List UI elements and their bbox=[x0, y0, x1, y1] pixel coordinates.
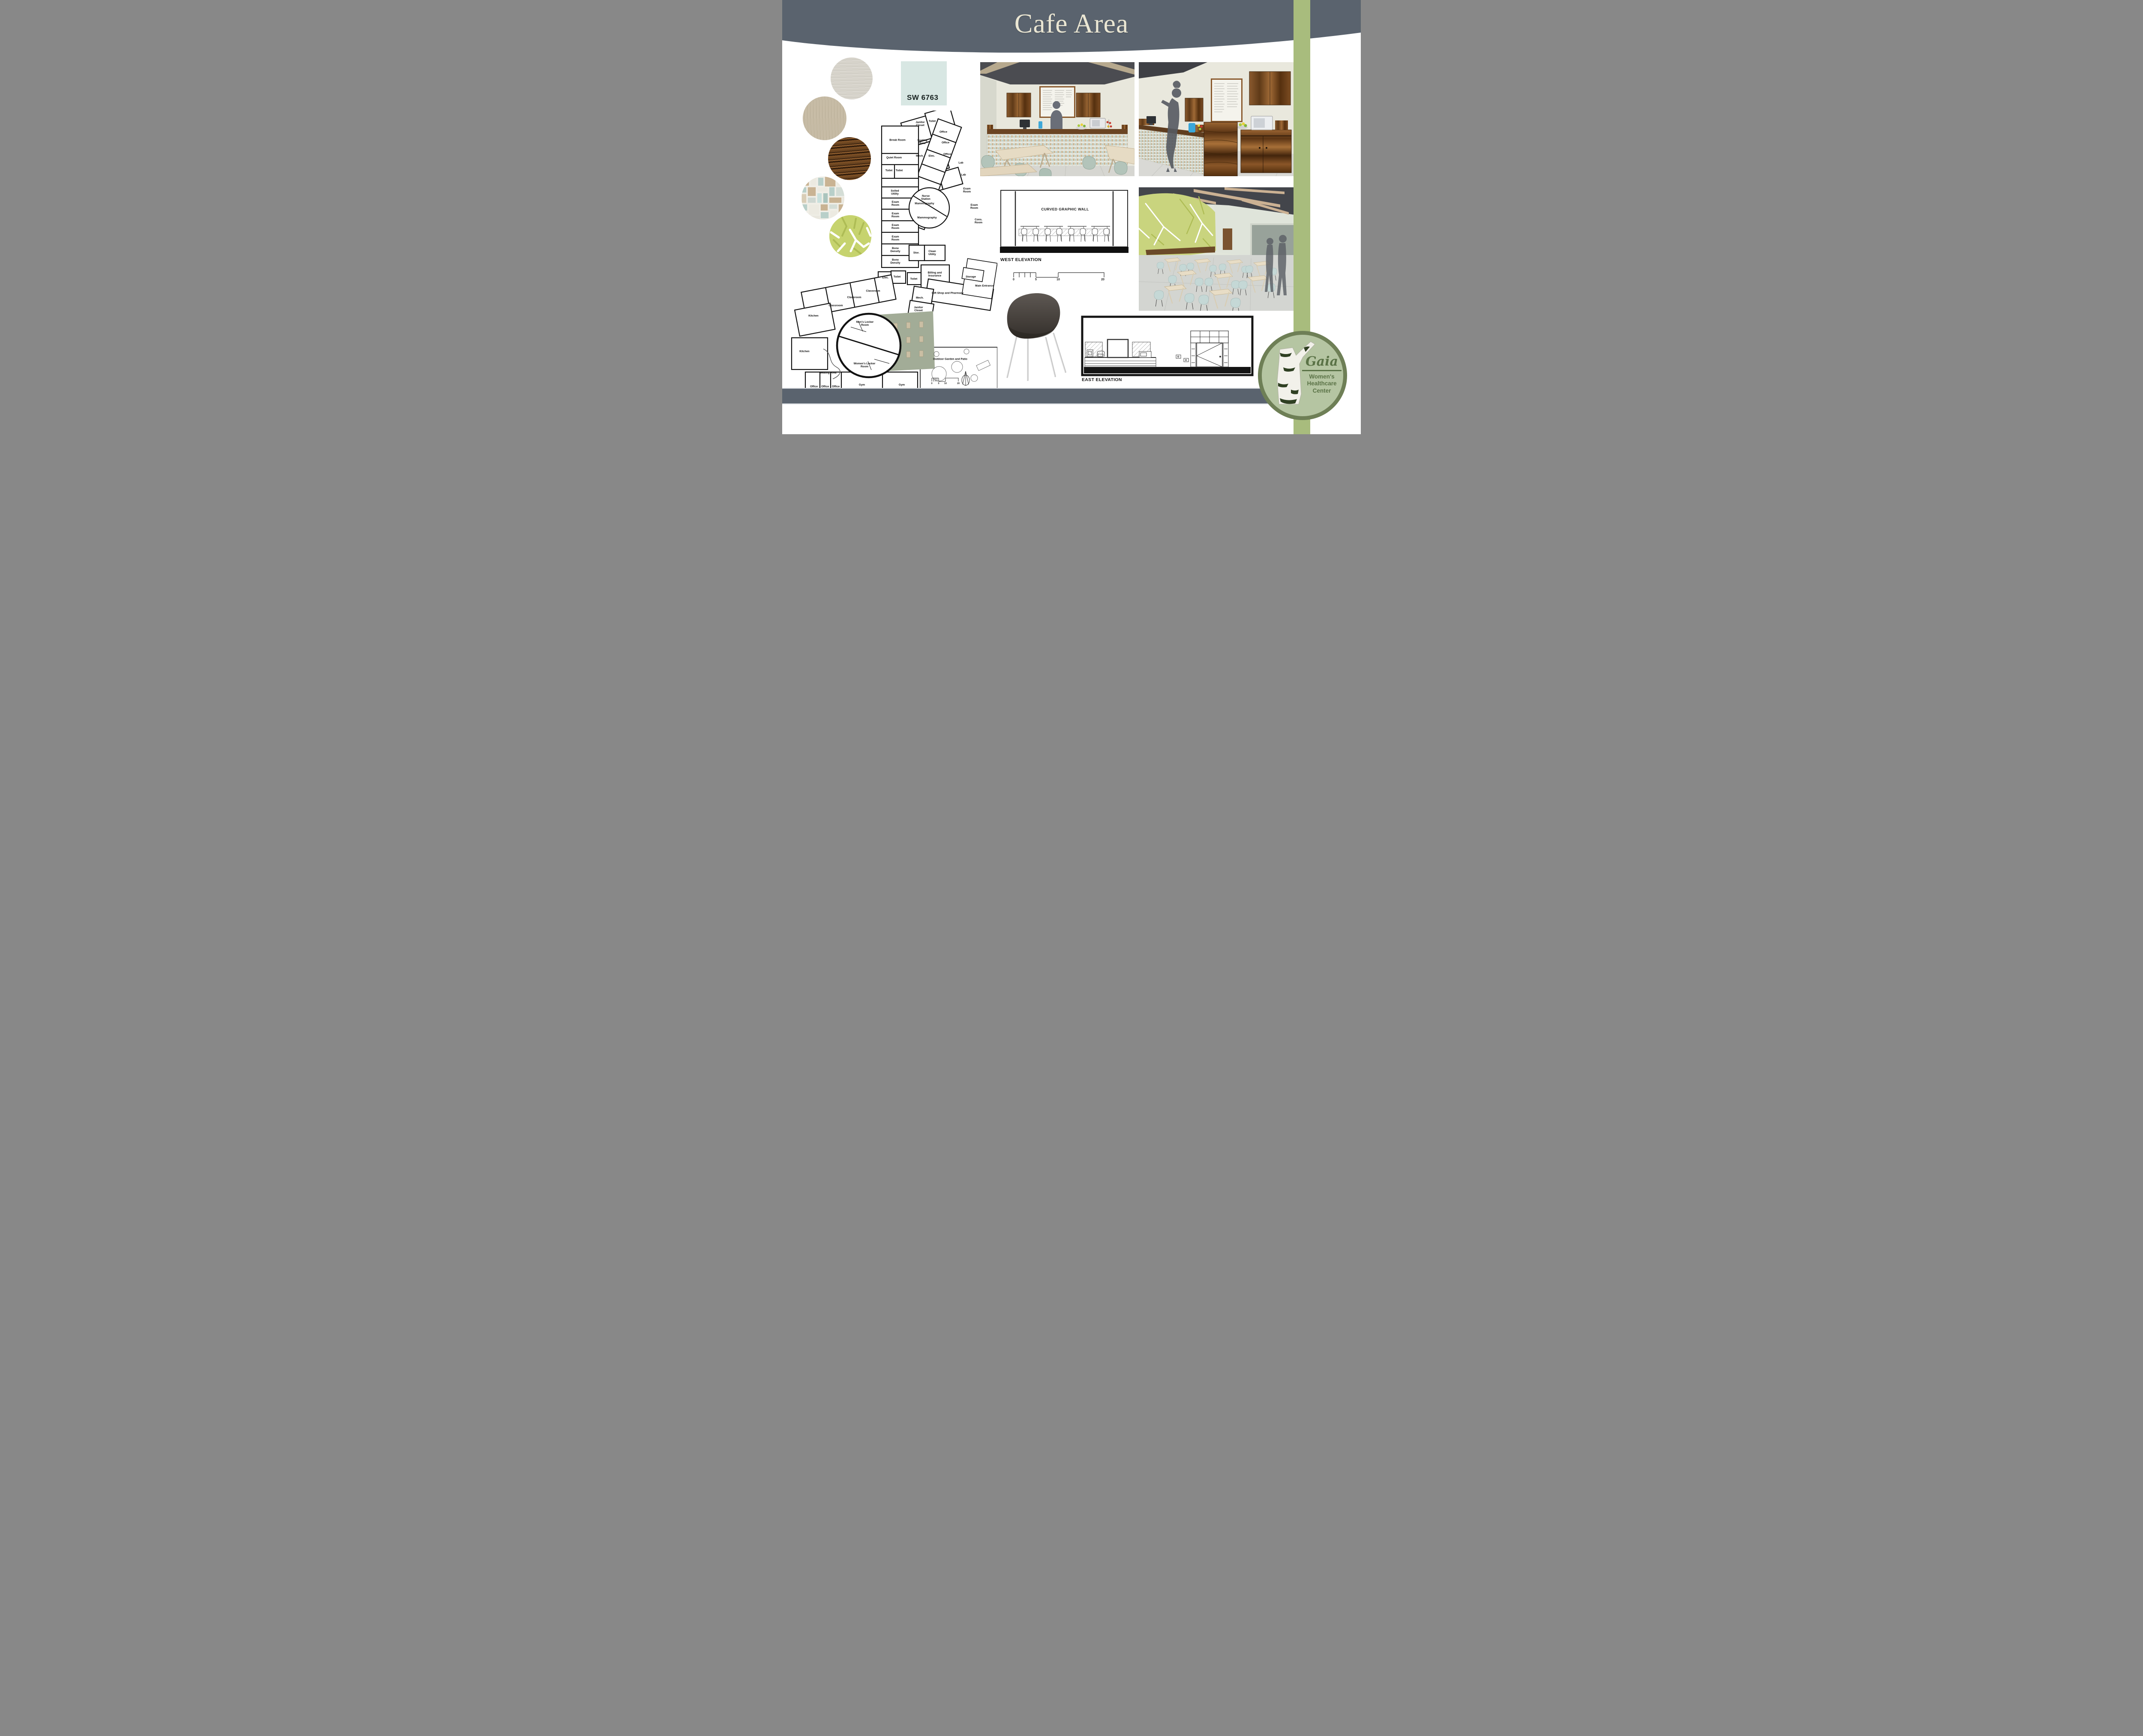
paint-code-label: SW 6763 bbox=[907, 93, 938, 102]
floor-plan: Janitor ClosetToiletOfficeBreak RoomSeat… bbox=[786, 111, 997, 391]
floor-plan-drawing bbox=[786, 111, 997, 391]
chair-product-image bbox=[991, 288, 1078, 387]
plan-scale-tick: 10 bbox=[944, 382, 947, 385]
logo-line: Women's bbox=[1300, 373, 1344, 380]
plan-scale-tick: 0 bbox=[931, 382, 932, 385]
render-cafe-counter-view bbox=[980, 62, 1135, 176]
logo-line: Healthcare bbox=[1300, 380, 1344, 387]
render-green-wall-seating bbox=[1139, 187, 1294, 311]
presentation-board: Cafe Area bbox=[782, 0, 1361, 434]
west-elevation-drawing bbox=[1000, 189, 1129, 257]
footer-band bbox=[782, 388, 1276, 404]
logo-brand: Gaia bbox=[1300, 355, 1344, 368]
logo-text: Gaia Women's Healthcare Center bbox=[1300, 355, 1344, 394]
west-annotation: CURVED GRAPHIC WALL bbox=[1026, 207, 1104, 211]
r2-cabinet-small bbox=[1185, 98, 1203, 121]
branch-pattern bbox=[829, 215, 871, 257]
east-elevation-drawing bbox=[1081, 315, 1254, 376]
east-microwave bbox=[1139, 351, 1151, 357]
plan-scale-tick: 20 bbox=[957, 382, 960, 385]
plan-locker-circle bbox=[837, 314, 900, 377]
east-floor-bar bbox=[1084, 367, 1251, 373]
paint-swatch: SW 6763 bbox=[901, 61, 947, 105]
r3-door bbox=[1223, 228, 1232, 250]
east-elevation-title: EAST ELEVATION bbox=[1082, 377, 1122, 382]
west-scale-tick: 10 bbox=[1056, 278, 1060, 281]
material-swatch-beige-woodgrain bbox=[803, 96, 846, 140]
page-title: Cafe Area bbox=[782, 8, 1361, 39]
west-scale-bar: 0 5 10 20 bbox=[1013, 272, 1105, 284]
west-elevation-title: WEST ELEVATION bbox=[1000, 257, 1041, 262]
gaia-logo: Gaia Women's Healthcare Center bbox=[1258, 330, 1348, 420]
material-swatch-mosaic-tile bbox=[801, 177, 844, 219]
west-scale-tick: 20 bbox=[1101, 278, 1105, 281]
plan-entrance-lobby bbox=[960, 258, 997, 299]
plan-mammography-circle bbox=[909, 188, 949, 228]
r2-wood-post bbox=[1275, 120, 1288, 130]
mosaic-tile-pattern bbox=[801, 177, 844, 219]
logo-divider bbox=[1302, 370, 1342, 371]
r2-lower-cabinet bbox=[1241, 130, 1291, 173]
material-swatch-burnt-wood bbox=[828, 137, 871, 180]
plan-scale-tick: 5 bbox=[938, 382, 939, 385]
logo-line: Center bbox=[1300, 387, 1344, 394]
west-scale-tick: 0 bbox=[1013, 278, 1014, 281]
material-swatch-green-branch bbox=[829, 215, 871, 257]
render-counter-closeup bbox=[1139, 62, 1294, 176]
material-swatch-light-woodgrain bbox=[831, 57, 873, 99]
r2-menu-board bbox=[1211, 78, 1243, 122]
r2-wood-end-panel bbox=[1204, 122, 1237, 176]
west-scale-tick: 5 bbox=[1035, 278, 1037, 281]
chair-legs bbox=[1007, 333, 1065, 380]
east-cabinet-hatch bbox=[1085, 342, 1102, 357]
west-floor-bar bbox=[1000, 247, 1129, 253]
east-menu-frame bbox=[1108, 339, 1128, 357]
